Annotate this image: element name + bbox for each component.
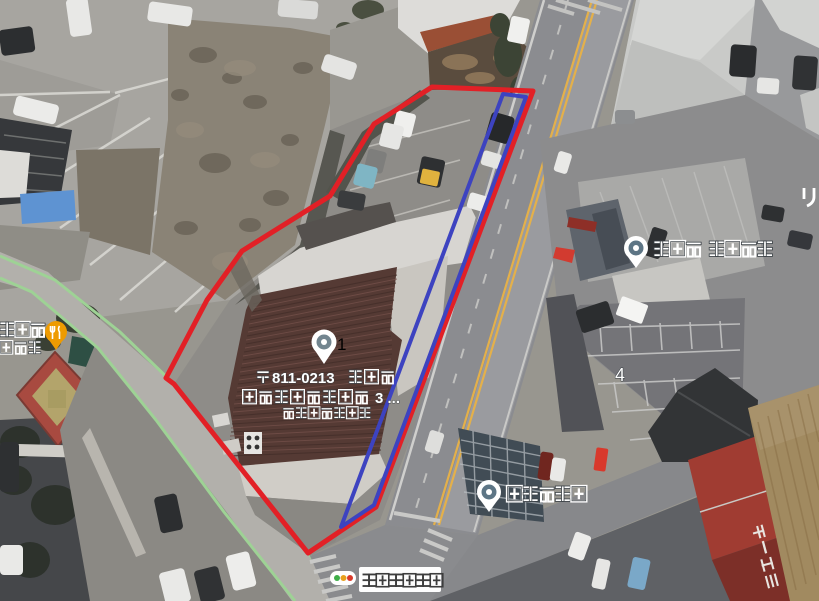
svg-text:1: 1 — [337, 335, 346, 354]
svg-text:811-0213: 811-0213 — [272, 370, 335, 387]
svg-text:4: 4 — [615, 365, 625, 385]
svg-text:3 ...: 3 ... — [375, 390, 400, 407]
